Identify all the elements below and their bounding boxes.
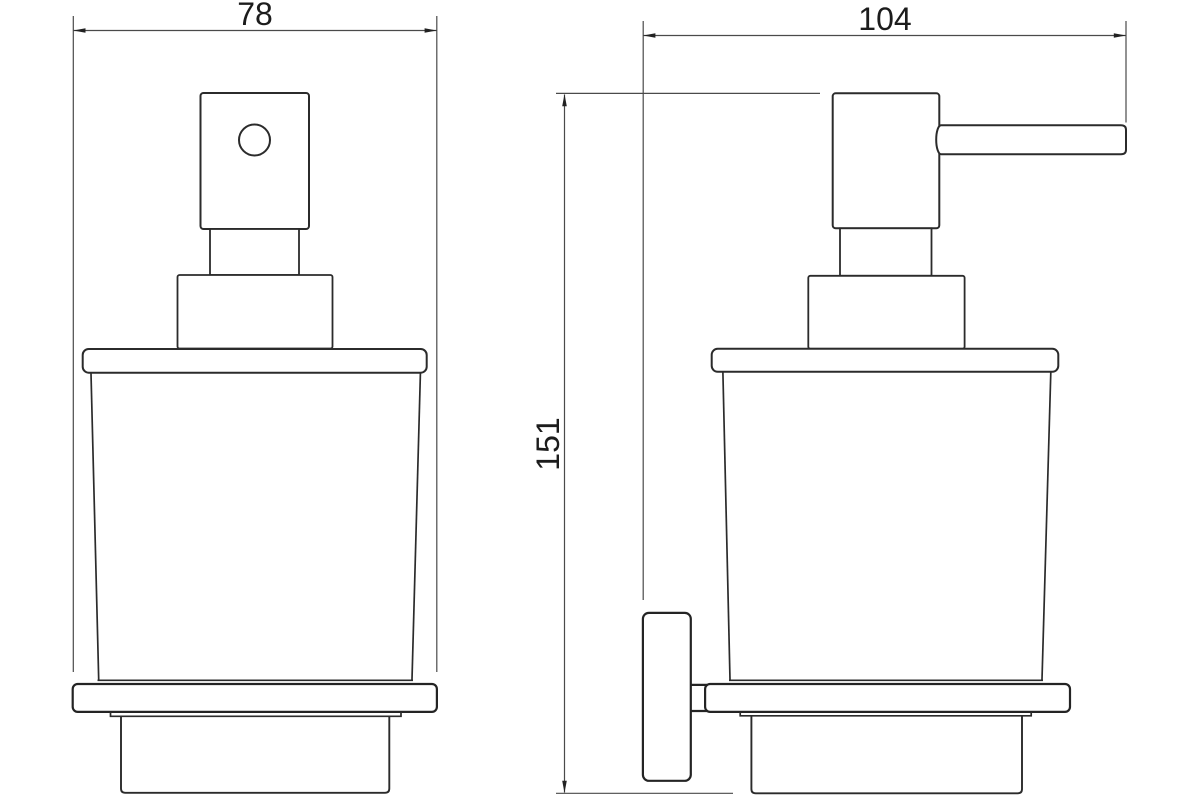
svg-text:78: 78 [237,0,273,32]
svg-text:104: 104 [858,1,911,37]
svg-text:151: 151 [530,417,566,470]
